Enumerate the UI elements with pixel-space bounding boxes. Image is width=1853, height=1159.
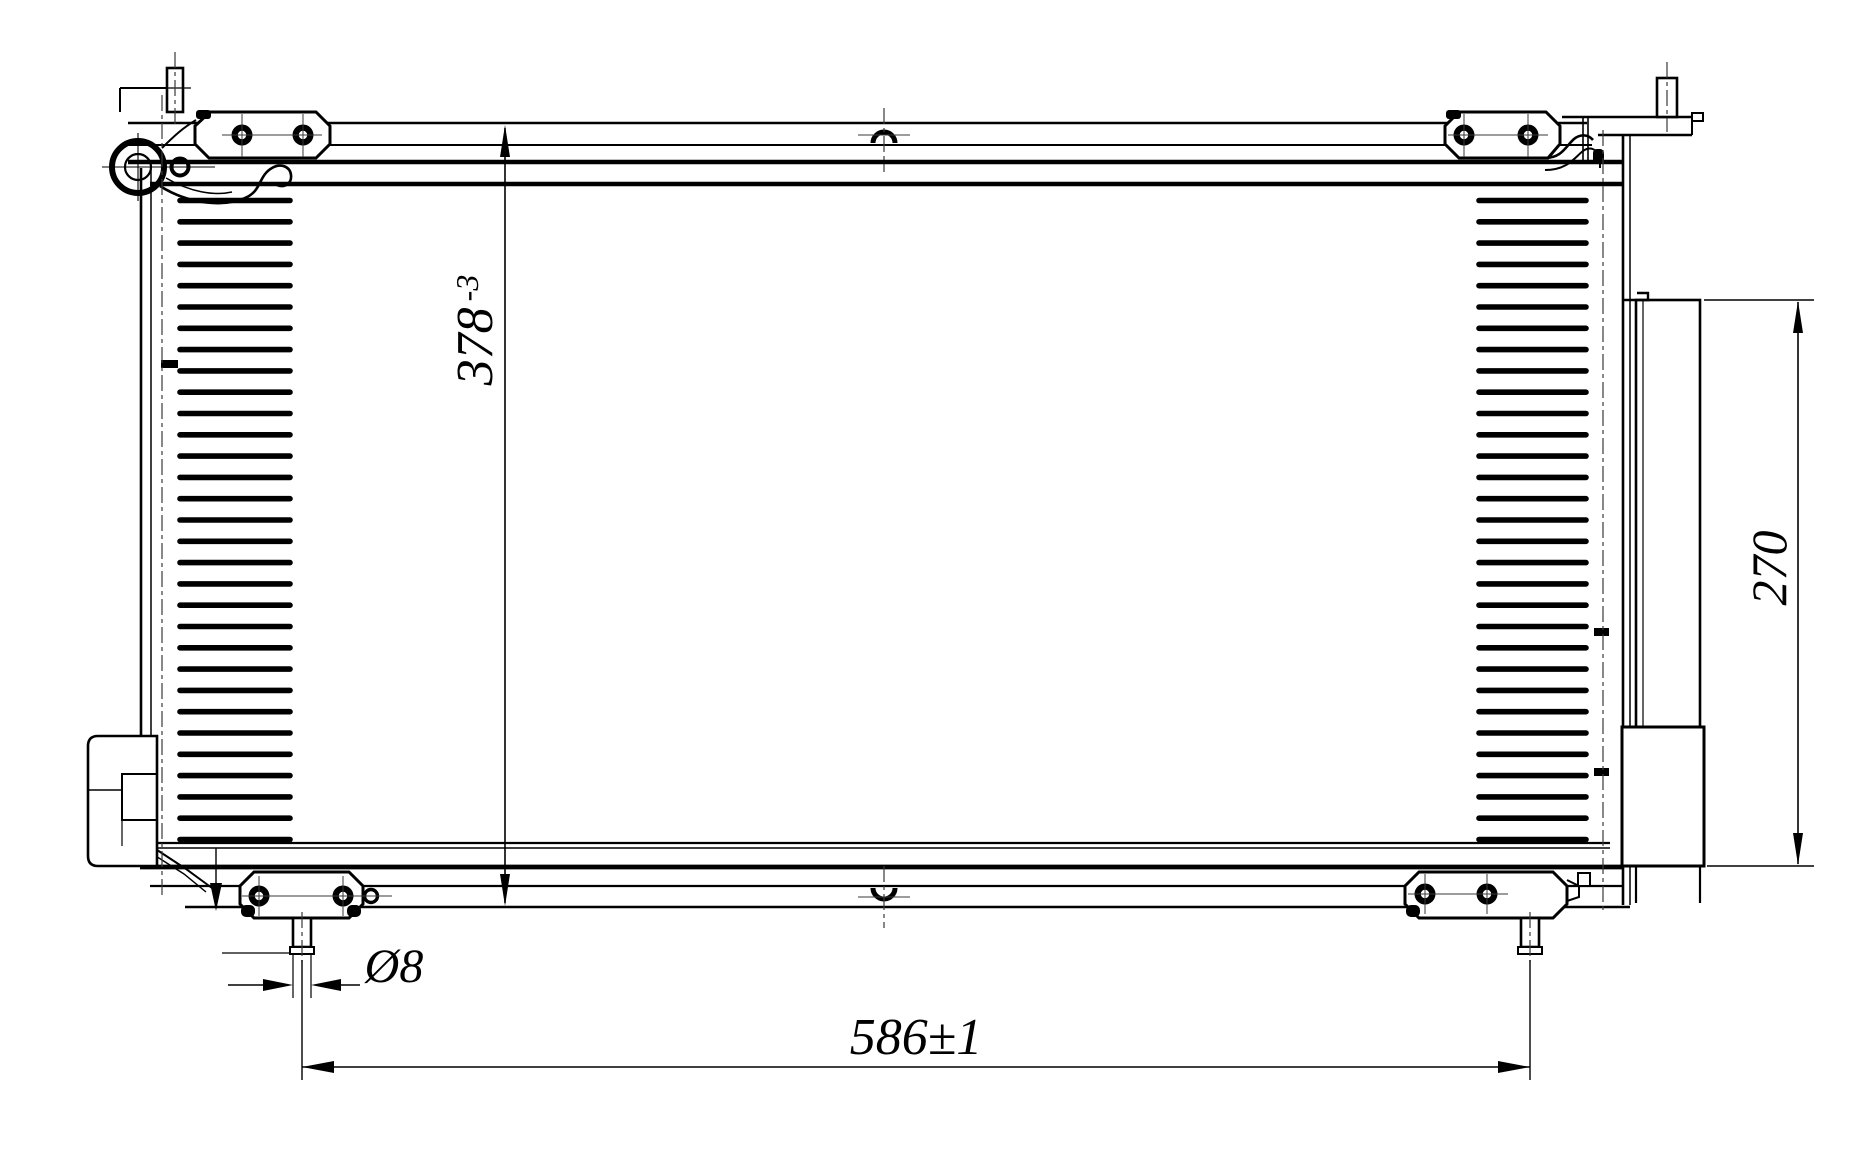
dim-pin-diameter-value: Ø8: [364, 940, 424, 993]
dim-mounting-span-value: 586±1: [850, 1009, 983, 1066]
dim-core-height-value: 378: [447, 307, 504, 386]
bracket-top-left: [195, 110, 330, 158]
condenser-technical-drawing: 378-3 270 586±1 Ø8: [0, 0, 1853, 1159]
dim-drier-height-value: 270: [1741, 531, 1797, 606]
drawing-canvas: 378-3 270 586±1 Ø8: [0, 0, 1853, 1159]
drier-lower-body: [1622, 727, 1704, 866]
bracket-bottom-left: [240, 872, 378, 918]
left-side-bracket: [88, 736, 157, 866]
dim-core-height-tolerance: -3: [449, 275, 485, 302]
